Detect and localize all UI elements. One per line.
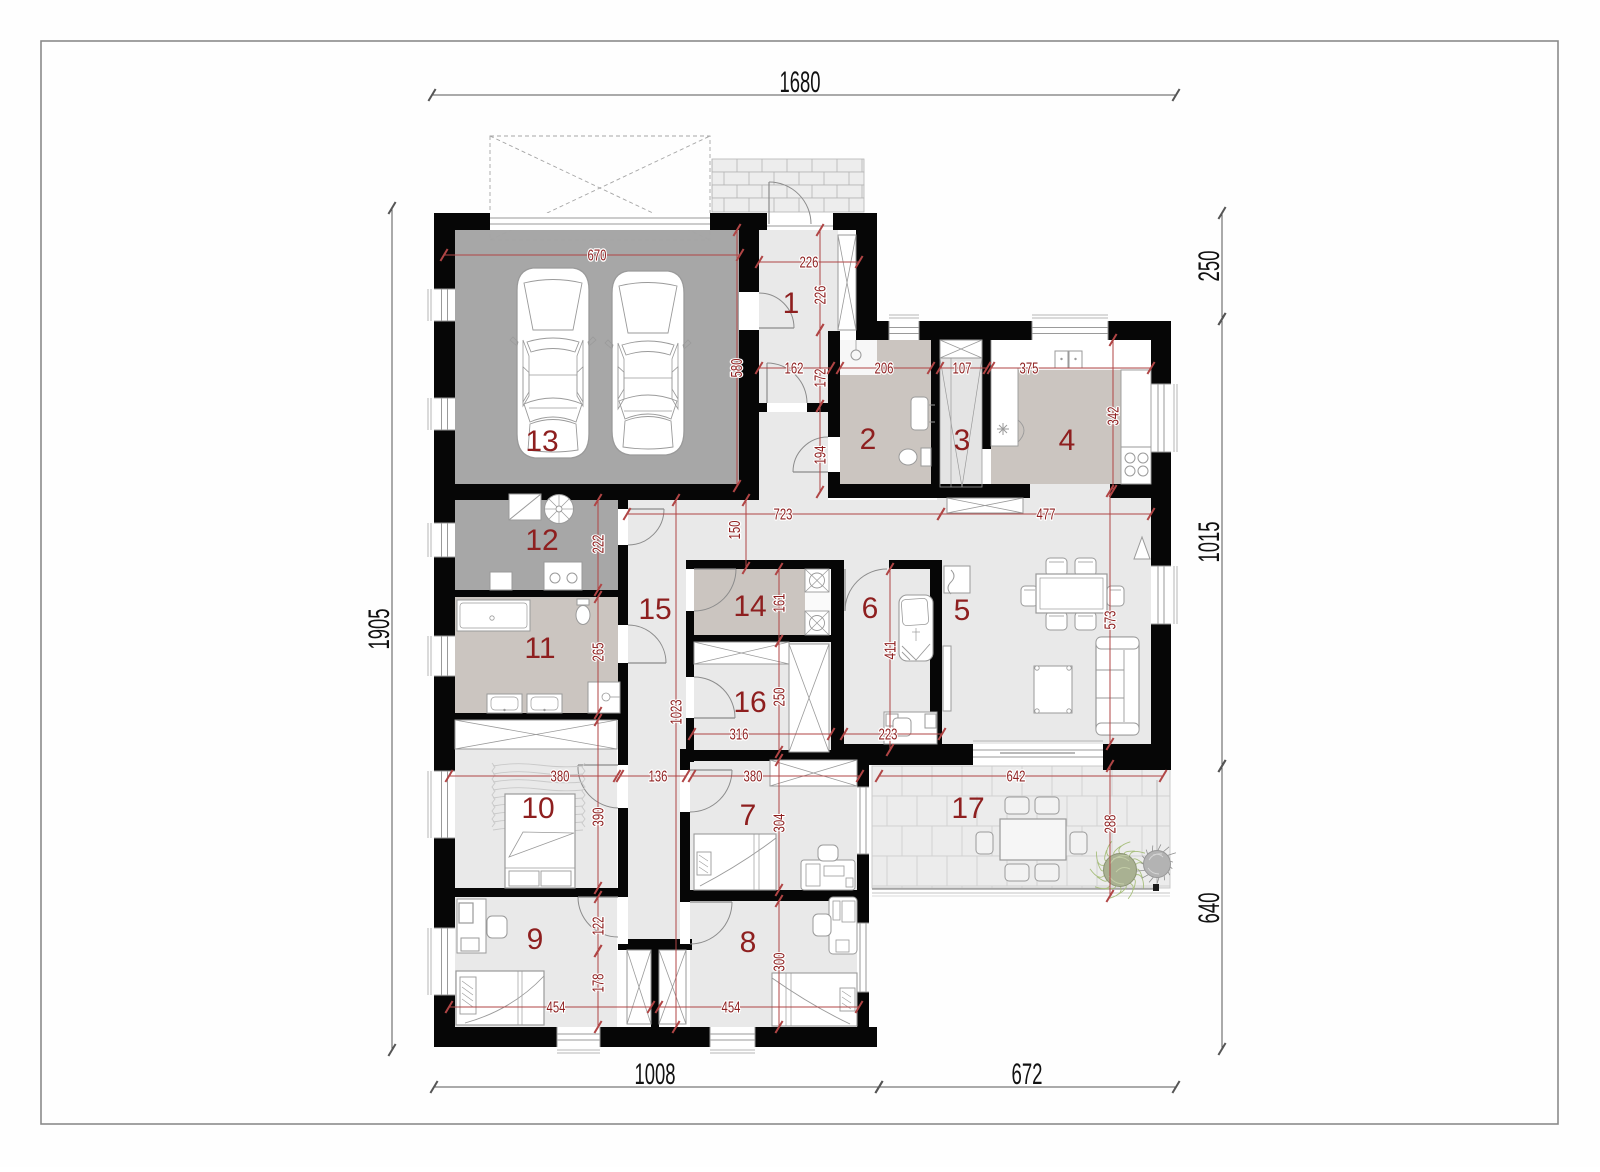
svg-text:7: 7 (740, 799, 757, 832)
svg-text:411: 411 (883, 641, 900, 660)
svg-text:172: 172 (813, 369, 830, 388)
svg-text:573: 573 (1103, 611, 1120, 630)
svg-text:342: 342 (1106, 407, 1123, 426)
svg-text:380: 380 (551, 769, 570, 786)
svg-text:477: 477 (1037, 507, 1056, 524)
svg-text:14: 14 (733, 590, 766, 623)
svg-text:8: 8 (740, 926, 757, 959)
svg-text:640: 640 (1193, 893, 1226, 924)
svg-text:223: 223 (879, 727, 898, 744)
svg-text:226: 226 (813, 286, 830, 305)
svg-text:304: 304 (772, 813, 789, 832)
svg-text:15: 15 (638, 593, 671, 626)
svg-text:1015: 1015 (1193, 522, 1226, 563)
svg-text:13: 13 (525, 425, 558, 458)
svg-text:2: 2 (860, 423, 877, 456)
svg-text:11: 11 (524, 632, 555, 665)
svg-text:723: 723 (774, 507, 793, 524)
svg-text:1008: 1008 (635, 1058, 676, 1091)
svg-text:3: 3 (954, 424, 971, 457)
svg-text:6: 6 (862, 592, 879, 625)
svg-text:162: 162 (785, 361, 804, 378)
svg-text:136: 136 (649, 769, 668, 786)
svg-text:454: 454 (547, 1000, 566, 1017)
svg-text:226: 226 (800, 255, 819, 272)
svg-text:178: 178 (591, 974, 608, 993)
svg-text:1905: 1905 (363, 609, 396, 650)
svg-text:5: 5 (954, 594, 971, 627)
svg-text:672: 672 (1012, 1058, 1043, 1091)
svg-text:10: 10 (521, 792, 554, 825)
svg-text:580: 580 (729, 358, 746, 377)
svg-text:222: 222 (591, 535, 608, 554)
svg-text:12: 12 (525, 524, 558, 557)
svg-text:288: 288 (1103, 815, 1120, 834)
svg-text:250: 250 (1193, 251, 1226, 282)
svg-text:161: 161 (772, 594, 789, 613)
svg-text:250: 250 (772, 687, 789, 706)
svg-text:1680: 1680 (780, 66, 821, 99)
svg-text:300: 300 (772, 952, 789, 971)
svg-text:194: 194 (813, 445, 830, 464)
svg-text:9: 9 (527, 923, 544, 956)
svg-text:316: 316 (730, 727, 749, 744)
svg-text:1: 1 (783, 287, 800, 320)
svg-text:642: 642 (1007, 769, 1026, 786)
svg-text:390: 390 (591, 807, 608, 826)
svg-text:1023: 1023 (669, 699, 686, 724)
svg-text:17: 17 (951, 792, 984, 825)
svg-text:107: 107 (953, 361, 972, 378)
svg-text:206: 206 (875, 361, 894, 378)
svg-text:380: 380 (744, 769, 763, 786)
svg-text:150: 150 (727, 520, 744, 539)
svg-text:670: 670 (588, 248, 607, 265)
svg-text:122: 122 (591, 917, 608, 936)
svg-text:454: 454 (722, 1000, 741, 1017)
svg-text:4: 4 (1059, 424, 1076, 457)
svg-text:375: 375 (1020, 361, 1039, 378)
svg-text:265: 265 (591, 643, 608, 662)
svg-text:16: 16 (733, 686, 766, 719)
